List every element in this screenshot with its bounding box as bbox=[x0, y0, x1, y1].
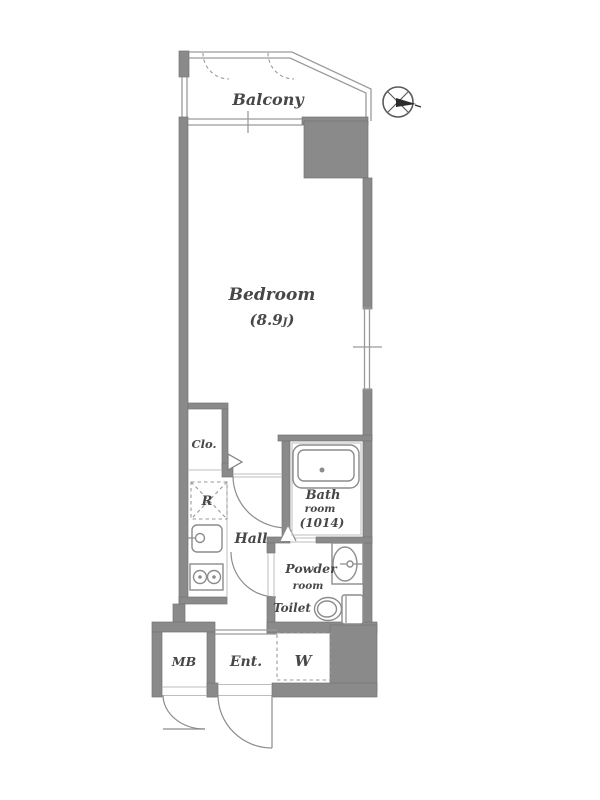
toilet-icon bbox=[315, 595, 364, 624]
toilet-label: Toilet bbox=[273, 601, 311, 615]
floor-plan: Balcony Bedroom (8.9J) Clo. R Hall Bath … bbox=[0, 0, 600, 800]
wall-mb-left bbox=[152, 632, 162, 697]
wall-bottom-right-block bbox=[330, 625, 377, 692]
wall-powder-left-top bbox=[267, 543, 275, 553]
balcony-pillar bbox=[179, 51, 189, 77]
door-bedroom-arc bbox=[233, 476, 287, 528]
bedroom-size-label: (8.9J) bbox=[249, 311, 294, 329]
meter-box-label: MB bbox=[171, 654, 196, 669]
door-powder-arc bbox=[231, 552, 276, 597]
closet-label: Clo. bbox=[192, 437, 217, 451]
mb-door-threshold bbox=[162, 687, 207, 696]
bedroom-door-threshold bbox=[233, 474, 282, 477]
balcony-hatch-arc-left bbox=[203, 53, 229, 79]
wall-bottom-right bbox=[272, 683, 377, 697]
wall-bottom-mid bbox=[207, 683, 218, 697]
entrance-label: Ent. bbox=[229, 654, 262, 670]
wall-kitchen-bottom bbox=[179, 597, 227, 604]
entrance-door-threshold bbox=[218, 685, 272, 696]
wall-left bbox=[179, 117, 188, 603]
step-direction-marker bbox=[228, 454, 242, 470]
wall-closet-top bbox=[188, 403, 228, 409]
balcony-outer-rail bbox=[189, 52, 371, 121]
bedroom-label: Bedroom bbox=[228, 285, 316, 305]
powder-door-threshold bbox=[268, 553, 274, 596]
bathroom-label-1: Bath bbox=[305, 488, 341, 503]
balcony-left-rail bbox=[182, 77, 187, 117]
refrigerator-label: R bbox=[201, 494, 213, 509]
bathtub-icon bbox=[293, 445, 359, 488]
washer-label: W bbox=[295, 652, 314, 670]
wall-corner-block bbox=[304, 121, 368, 178]
wall-bath-left bbox=[282, 441, 290, 537]
wall-right-upper bbox=[363, 178, 372, 309]
wall-right-lower bbox=[363, 389, 372, 626]
compass-icon bbox=[383, 87, 421, 117]
door-entrance bbox=[218, 695, 272, 748]
balcony-label: Balcony bbox=[231, 90, 305, 109]
wall-kitchen-stub bbox=[173, 604, 185, 622]
wall-closet-right bbox=[222, 409, 228, 470]
window-right bbox=[353, 308, 382, 389]
door-mb bbox=[163, 695, 205, 729]
powder-room-label-1: Powder bbox=[284, 561, 338, 576]
wall-mb-top bbox=[152, 622, 215, 632]
powder-room-label-2: room bbox=[293, 580, 324, 592]
wall-bath-top bbox=[278, 435, 372, 441]
bathroom-label-2: room bbox=[305, 503, 336, 515]
floor-plan-page: Balcony Bedroom (8.9J) Clo. R Hall Bath … bbox=[0, 0, 600, 800]
window-top bbox=[188, 111, 302, 133]
balcony-hatch-arc-right bbox=[268, 53, 294, 79]
stove-icon bbox=[190, 564, 223, 590]
bathroom-label-3: (1014) bbox=[300, 516, 345, 530]
hall-label: Hall bbox=[234, 531, 268, 547]
wall-bath-bottom bbox=[316, 537, 372, 543]
kitchen-sink-icon bbox=[188, 525, 222, 552]
